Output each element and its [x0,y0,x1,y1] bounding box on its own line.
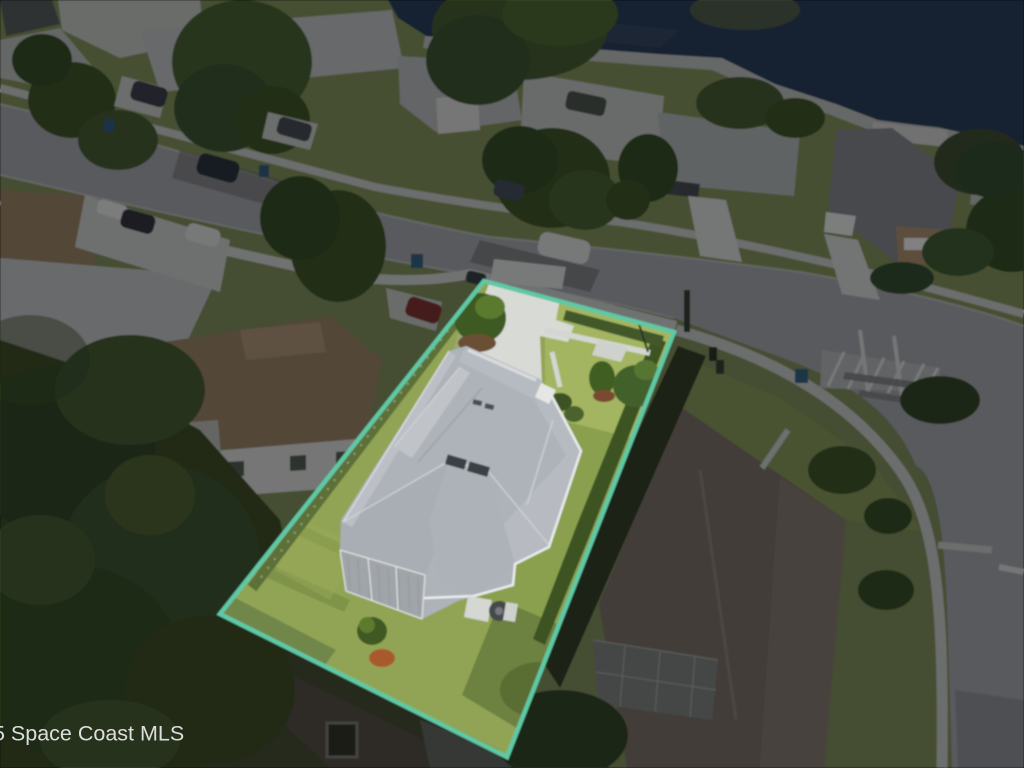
svg-text:5 Space Coast MLS: 5 Space Coast MLS [0,722,184,746]
